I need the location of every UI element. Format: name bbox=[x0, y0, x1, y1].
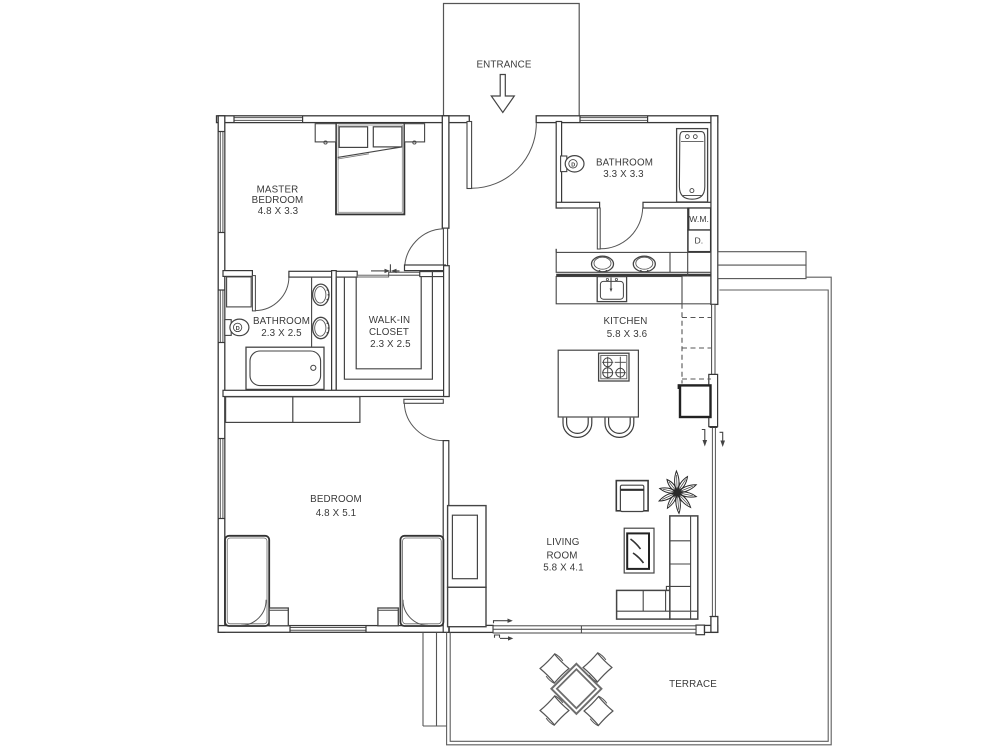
svg-text:ROOM: ROOM bbox=[546, 551, 577, 562]
svg-text:D: D bbox=[236, 326, 240, 332]
svg-text:W.M.: W.M. bbox=[689, 214, 709, 224]
svg-text:D: D bbox=[571, 162, 575, 168]
svg-text:MASTER: MASTER bbox=[257, 185, 299, 196]
svg-text:ENTRANCE: ENTRANCE bbox=[476, 60, 531, 71]
svg-text:4.8 X 5.1: 4.8 X 5.1 bbox=[316, 508, 357, 519]
svg-text:5.8 X 4.1: 5.8 X 4.1 bbox=[543, 563, 584, 574]
svg-text:3.3 X 3.3: 3.3 X 3.3 bbox=[603, 169, 644, 180]
svg-text:TERRACE: TERRACE bbox=[669, 679, 717, 690]
svg-text:2.3 X 2.5: 2.3 X 2.5 bbox=[261, 328, 302, 339]
svg-text:BEDROOM: BEDROOM bbox=[310, 494, 362, 505]
svg-text:KITCHEN: KITCHEN bbox=[603, 316, 647, 327]
svg-text:BEDROOM: BEDROOM bbox=[252, 195, 304, 206]
svg-text:4.8 X 3.3: 4.8 X 3.3 bbox=[258, 206, 299, 217]
svg-text:5.8 X 3.6: 5.8 X 3.6 bbox=[607, 329, 648, 340]
svg-text:D.: D. bbox=[695, 236, 704, 246]
svg-text:BATHROOM: BATHROOM bbox=[253, 316, 310, 327]
svg-text:LIVING: LIVING bbox=[546, 537, 579, 548]
svg-text:CLOSET: CLOSET bbox=[369, 327, 409, 338]
svg-text:WALK-IN: WALK-IN bbox=[369, 315, 411, 326]
svg-text:2.3 X 2.5: 2.3 X 2.5 bbox=[370, 339, 411, 350]
svg-text:BATHROOM: BATHROOM bbox=[596, 158, 653, 169]
